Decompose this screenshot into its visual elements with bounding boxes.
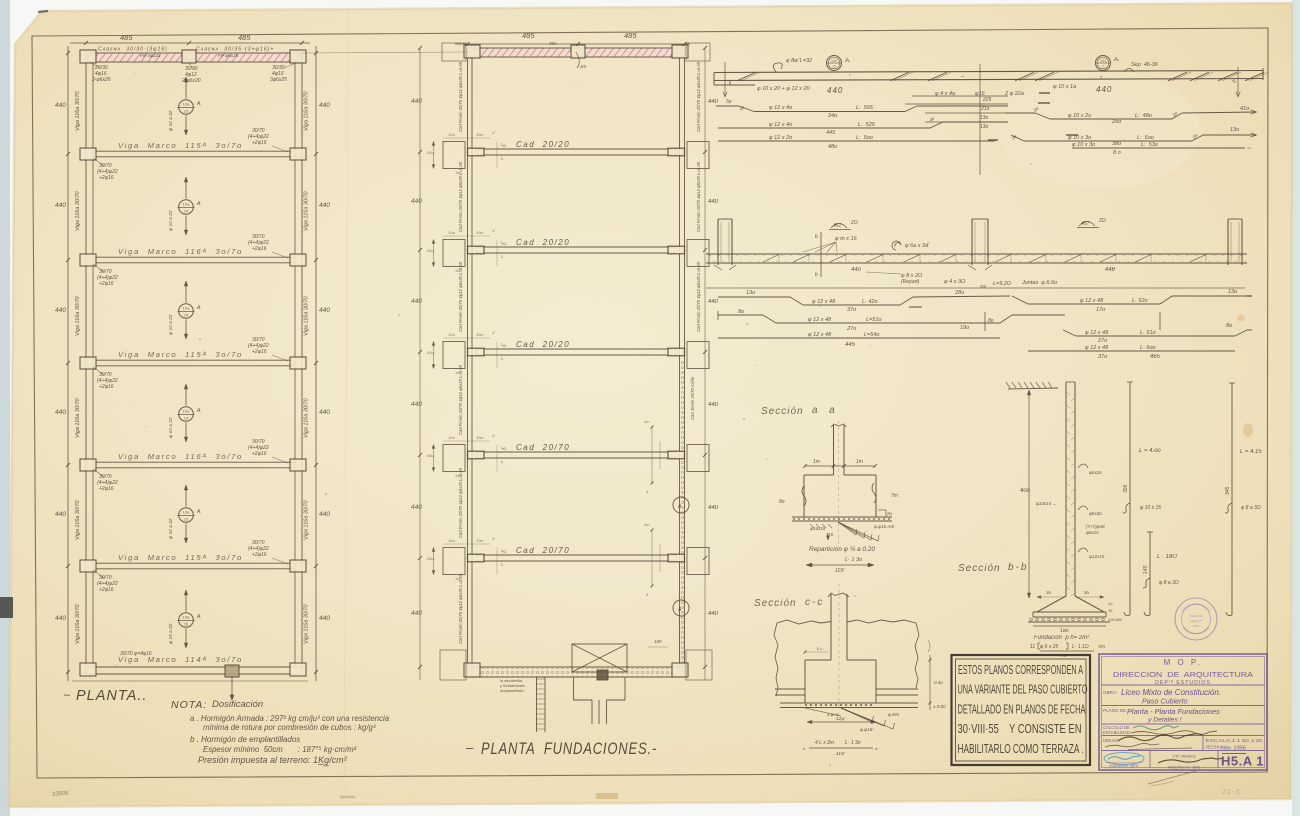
svg-text:L=54o: L=54o [864,332,879,338]
svg-text:Fundación p h= 2m²: Fundación p h= 2m² [1034,635,1090,641]
svg-text:Dosificación: Dosificación [212,699,263,710]
svg-text:A.: A. [196,101,202,107]
svg-text:12μ⁄: 12μ⁄ [836,716,846,722]
svg-text:Cᴀᴅᴇɴᴀ 30/35·(3+φ16)+: Cᴀᴅᴇɴᴀ 30/35·(3+φ16)+ [196,47,274,53]
svg-text:33806: 33806 [52,791,70,798]
svg-text:L· 1 3o: L· 1 3o [845,557,862,563]
svg-text:11m: 11m [448,539,455,543]
svg-text:DEPᵗª ESTUDIOS: DEPᵗª ESTUDIOS [1155,680,1211,686]
svg-text:440: 440 [319,202,330,209]
svg-text:4oo: 4oo [1020,488,1031,494]
svg-text:27o: 27o [846,326,856,332]
svg-text:φ 12 x 2o: φ 12 x 2o [769,135,792,141]
svg-text:H5.A 1: H5.A 1 [1221,754,1264,769]
svg-text:27o: 27o [1097,338,1107,344]
svg-text:445: 445 [826,130,836,136]
svg-text:φ 10 a 22: φ 10 a 22 [168,417,174,438]
svg-text:1oo: 1oo [1060,628,1069,634]
svg-text:φ 12 x 48: φ 12 x 48 [1085,330,1109,336]
svg-text:10a: 10a [183,615,190,620]
svg-text:440: 440 [708,505,719,511]
svg-text:30/70 φ=4φ16: 30/70 φ=4φ16 [120,651,152,657]
svg-text:Cad Fimón 20/70 4φ12 φ6x20 L=5: Cad Fimón 20/70 4φ12 φ6x20 L=5.60 [458,467,463,538]
svg-text:(7+7)φ48: (7+7)φ48 [1086,524,1105,529]
svg-text:Feˡˡ φ6x25: Feˡˡ φ6x25 [218,53,239,58]
svg-text:φ 10 x 2o: φ 10 x 2o [1068,113,1091,119]
svg-text:Cad Fimón 20/70 4φ12 φ6x20 L=5: Cad Fimón 20/70 4φ12 φ6x20 L=5.60 [696,61,701,132]
svg-text:L · 18O: L · 18O [1157,554,1177,560]
svg-text:10m: 10m [476,231,483,235]
svg-text:115⁄: 115⁄ [836,751,846,757]
svg-text:440: 440 [708,299,719,305]
svg-text:φ 8 a 3O: φ 8 a 3O [1159,580,1179,586]
svg-text:Viga 116a 30/70: Viga 116a 30/70 [304,91,310,131]
svg-text:440: 440 [55,409,66,416]
svg-text:b: b [815,234,818,240]
svg-text:A.: A. [196,509,202,515]
svg-text:y Detalles !: y Detalles ! [1147,717,1182,724]
svg-text:440: 440 [319,511,330,518]
svg-text:41o: 41o [1240,106,1249,112]
svg-text:Cad Fimón 20/70 4φ12 φ6x20 L=5: Cad Fimón 20/70 4φ12 φ6x20 L=5.60 [458,573,463,644]
svg-text:Sep 46-36: Sep 46-36 [1131,62,1159,68]
svg-text:+2φ16: +2φ16 [99,587,114,593]
svg-text:a . Hormigón Armada : 297² kg: a . Hormigón Armada : 297² kg cm/ju³ con… [190,714,390,723]
svg-text:440: 440 [708,99,719,105]
svg-text:L· 1 3o: L· 1 3o [845,740,861,746]
svg-text:φ 12 x 48: φ 12 x 48 [1080,298,1104,304]
svg-text:44θ: 44θ [1105,267,1116,273]
svg-text:φ 10 x 20 + φ 12 x 20: φ 10 x 20 + φ 12 x 20 [757,86,811,92]
svg-text:Viga 116a 30/70: Viga 116a 30/70 [75,296,81,336]
svg-text:φ 10 x 3o: φ 10 x 3o [1068,135,1091,141]
svg-text:2oo: 2oo [1111,119,1121,125]
svg-text:PLANTA FUNDACIONES.-: PLANTA FUNDACIONES.- [481,740,657,758]
svg-text:1m: 1m [813,459,820,465]
svg-text:A: A [677,504,682,510]
svg-text:15: 15 [184,109,189,114]
svg-text:φ 12 x 48: φ 12 x 48 [1085,345,1109,351]
svg-text:440: 440 [411,98,422,105]
svg-text:11m: 11m [448,333,455,337]
svg-text:485: 485 [120,33,133,42]
svg-text:Paso Cubierto: Paso Cubierto [1142,697,1188,706]
svg-text:L: 525: L: 525 [858,122,876,128]
svg-text:L· 1.1O: L· 1.1O [1072,644,1089,650]
svg-text:10m: 10m [476,333,483,337]
svg-text:225: 225 [982,97,992,103]
svg-text:1m: 1m [856,459,863,465]
svg-text:+2φ16: +2φ16 [252,349,267,355]
svg-text:└o: └o [500,142,506,148]
svg-text:65ω: 65ω [427,557,434,561]
svg-text:Viga 116a 30/70: Viga 116a 30/70 [304,296,310,336]
svg-text:Cad Fimón 20/70 4φ12 φ6x20 L=5: Cad Fimón 20/70 4φ12 φ6x20 L=5.60 [458,161,463,232]
svg-text:PLANO DE:: PLANO DE: [1103,708,1128,713]
svg-text:0.4o: 0.4o [934,680,943,685]
svg-text:15: 15 [184,517,189,522]
svg-text:1m: 1m [644,419,650,424]
svg-text:A: A [677,607,682,613]
svg-text:345: 345 [1225,486,1231,495]
svg-text:Viga Marco 115ᴬ 3o/7o: Viga Marco 115ᴬ 3o/7o [118,142,243,150]
svg-text:Viga 116a 30/70: Viga 116a 30/70 [75,191,81,231]
svg-text:Viga Marco 115ᴬ 3o/7o: Viga Marco 115ᴬ 3o/7o [118,351,243,359]
svg-text:Espesor mínimo 50cm : 1: Espesor mínimo 50cm : 187°⁵ kg·cm/m² [203,745,357,754]
svg-text:+2φ16: +2φ16 [99,384,114,390]
svg-text:φ 12 x 48: φ 12 x 48 [812,299,836,305]
svg-text:Viga 116a 30/70: Viga 116a 30/70 [304,604,310,644]
svg-text:φ 10 a 22: φ 10 a 22 [168,110,174,131]
svg-text:Feˡˡ 4φ22a: Feˡˡ 4φ22a [140,53,161,58]
svg-text:13o: 13o [1228,289,1237,295]
svg-text:21-3: 21-3 [1221,789,1240,796]
svg-text:104: 104 [1100,59,1106,63]
svg-text:+2φ16: +2φ16 [99,486,114,492]
svg-text:∿: ∿ [1231,79,1236,85]
svg-text:φ 8a⁄ L=32: φ 8a⁄ L=32 [786,58,812,64]
svg-text:7m: 7m [891,493,898,499]
svg-text:Cad Fimón 20/70 4φ12 φ6x20 L=5: Cad Fimón 20/70 4φ12 φ6x20 L=5.60 [458,364,463,435]
svg-text:φ 8 a 3O: φ 8 a 3O [1241,505,1261,511]
svg-text:Cad Fimón 20/70 4φ12 φ6x20 L=5: Cad Fimón 20/70 4φ12 φ6x20 L=5.60 [458,61,463,132]
svg-text:Cad Fimón 20/70 4φ12 φ6x20 L=5: Cad Fimón 20/70 4φ12 φ6x20 L=5.60 [458,261,463,332]
svg-text:2-φ6x20: 2-φ6x20 [181,78,201,84]
svg-text:ESCALA:1:1 50 1:20: ESCALA:1:1 50 1:20 [1206,738,1264,743]
svg-text:φ10x15 ←: φ10x15 ← [1036,501,1057,506]
svg-text:445: 445 [845,342,856,348]
svg-text:Cad 20/20: Cad 20/20 [516,140,570,149]
svg-text:–: – [466,740,474,755]
svg-text:Cad Fimón 20/70 4φ12 φ6x20 L=5: Cad Fimón 20/70 4φ12 φ6x20 L=5.60 [696,261,701,332]
svg-text:A.: A. [196,305,202,311]
svg-text:28o: 28o [954,290,964,296]
svg-text:440: 440 [411,610,422,617]
svg-text:φ12x15: φ12x15 [1089,554,1105,559]
svg-text:Sección: Sección [958,563,1001,574]
svg-text:440: 440 [411,298,422,305]
svg-text:1m: 1m [644,522,650,527]
svg-text:10a: 10a [183,409,190,414]
svg-text:15: 15 [184,209,189,214]
svg-text:L: 5oo: L: 5oo [856,135,873,141]
svg-text:Viga 116a 30/70: Viga 116a 30/70 [75,398,81,438]
svg-text:440: 440 [1096,85,1112,94]
svg-text:30·VIII·55 Y CONSISTE EN: 30·VIII·55 Y CONSISTE EN [958,721,1082,736]
svg-text:19o: 19o [960,325,969,331]
svg-text:L: 6oo: L: 6oo [1137,135,1154,141]
svg-text:+2φ16: +2φ16 [252,140,267,146]
svg-text:+2φ16: +2φ16 [99,175,114,181]
svg-text:Cad 20/70: Cad 20/70 [516,546,570,555]
svg-text:11: 11 [1030,644,1035,650]
svg-text:440: 440 [319,409,330,416]
svg-text:10m: 10m [476,436,483,440]
svg-text:2: 2 [1102,65,1104,69]
svg-text:└o: └o [500,548,506,554]
svg-text:NOTA:: NOTA: [171,699,207,711]
svg-text:INGENIERO JEFE: INGENIERO JEFE [1109,764,1139,768]
svg-text:L=9.2O: L=9.2O [993,281,1012,287]
svg-text:8 o: 8 o [1113,150,1121,156]
svg-text:440: 440 [319,307,330,314]
svg-text:φ 12 x 4o: φ 12 x 4o [769,105,792,111]
svg-text:37o: 37o [847,307,856,313]
svg-text:φ.φ16 Adi: φ.φ16 Adi [874,524,895,529]
svg-text:65ω: 65ω [427,151,434,155]
svg-text:Viga 116a 30/70: Viga 116a 30/70 [75,91,81,131]
svg-text:L· 6oo: L· 6oo [1140,345,1156,351]
svg-text:1o: 1o [1108,601,1113,606]
svg-text:440: 440 [55,307,66,314]
svg-text:8o: 8o [779,499,785,505]
svg-text:15: 15 [184,313,189,318]
svg-text:b: b [815,272,818,278]
svg-text:44o: 44o [851,267,862,273]
svg-text:Cad Fimón 20/70 4φ12 φ6x20 L=5: Cad Fimón 20/70 4φ12 φ6x20 L=5.60 [696,161,701,232]
svg-text:2o: 2o [886,511,893,516]
svg-text:Juntas φ 6.6o: Juntas φ 6.6o [1021,280,1057,286]
svg-text:10a: 10a [183,102,190,107]
svg-text:10a: 10a [183,306,190,311]
svg-text:485: 485 [238,33,251,42]
svg-text:Viga Marco 116ᴬ 3o/7o: Viga Marco 116ᴬ 3o/7o [118,248,243,256]
svg-text:Cad 20/20: Cad 20/20 [516,340,570,349]
svg-text:φ 6 x 25: φ 6 x 25 [1040,644,1058,650]
svg-text:13o: 13o [980,115,989,121]
svg-text:ESTABILIDAD:: ESTABILIDAD: [1103,730,1131,735]
svg-text:–: – [64,689,71,701]
svg-text:15: 15 [184,416,189,421]
svg-text:DIBUJO:: DIBUJO: [1103,738,1120,743]
svg-text:PLANTA..: PLANTA.. [76,688,147,704]
svg-text:L· 42o: L· 42o [862,299,878,305]
svg-text:5o: 5o [726,99,732,105]
svg-text:100: 100 [654,639,662,644]
svg-text:Viga 116a 30/70: Viga 116a 30/70 [304,398,310,438]
svg-text:≈: ≈ [1100,75,1103,81]
svg-text:ARQUITECTO JEFE: ARQUITECTO JEFE [1168,766,1201,770]
svg-text:440: 440 [411,198,422,205]
svg-text:└o: └o [500,342,506,348]
svg-text:Sección: Sección [761,406,804,417]
svg-text:10m: 10m [476,539,483,543]
svg-text:Lₘ: Lₘ [817,646,823,651]
svg-text:440: 440 [55,102,66,109]
svg-text:+2φ16: +2φ16 [252,451,267,457]
svg-text:10m: 10m [476,133,483,137]
svg-text:M O P.: M O P. [1164,658,1203,667]
svg-text:MOP: MOP [1193,624,1200,628]
svg-text:mínima de rotura por combresió: mínima de rotura por combresión de cubos… [203,723,376,732]
svg-text:L = 4.15: L = 4.15 [1240,449,1262,455]
svg-text:2-φ6x25: 2-φ6x25 [91,77,111,83]
svg-text:485: 485 [624,31,637,40]
svg-text:Nov. 1956: Nov. 1956 [1221,746,1247,752]
svg-text:L = 4.oo: L = 4.oo [1139,448,1161,454]
svg-text:440: 440 [55,615,66,622]
svg-text:+2φ16: +2φ16 [252,552,267,558]
svg-text:L: 565: L: 565 [856,105,874,111]
svg-text:c-c: c-c [805,597,824,608]
svg-text:13o: 13o [980,124,989,130]
svg-text:Viga 116a 30/70: Viga 116a 30/70 [75,604,81,644]
svg-text:3m: 3m [580,64,587,69]
svg-text:10a: 10a [183,510,190,515]
svg-text:7⁄m: 7⁄m [1098,644,1105,649]
svg-text:∼: ∼ [1246,146,1251,152]
svg-text:A.: A. [196,614,202,620]
svg-text:440: 440 [708,402,719,408]
svg-text:65ω: 65ω [427,454,434,458]
svg-text:OBRA:: OBRA: [1103,690,1117,695]
svg-text:65ω: 65ω [427,351,434,355]
svg-text:Sección: Sección [754,598,797,609]
svg-text:L: 48o: L: 48o [1135,113,1152,119]
svg-text:440: 440 [55,202,66,209]
svg-text:440: 440 [319,615,330,622]
svg-text:A.: A. [844,58,851,64]
svg-text:φ 6⁄m: φ 6⁄m [888,712,899,717]
svg-text:395: 395 [1123,484,1129,493]
svg-text:V°B° MINARQ: V°B° MINARQ [1172,755,1195,759]
svg-text:±20 AM: ±20 AM [1108,617,1122,622]
svg-text:145: 145 [1143,565,1149,574]
svg-text:φ m x 16: φ m x 16 [835,236,858,242]
svg-text:38o: 38o [1112,141,1121,147]
svg-text:Cᴀᴅᴇɴᴀ 30/30·|3φ16|: Cᴀᴅᴇɴᴀ 30/30·|3φ16| [98,47,168,53]
svg-text:465: 465 [1150,354,1161,360]
svg-text:451: 451 [833,223,842,229]
svg-text:ARQUIT: ARQUIT [1190,619,1202,623]
svg-text:φ 12 x 48: φ 12 x 48 [808,317,832,323]
svg-text:48o: 48o [828,144,837,150]
svg-text:φ 12 x 4o: φ 12 x 4o [769,122,792,128]
svg-text:UNA VARIANTE DEL PASO CUBIERTO: UNA VARIANTE DEL PASO CUBIERTO [958,682,1088,697]
svg-text:11m: 11m [448,436,455,440]
svg-text:13o: 13o [746,290,755,296]
svg-text:Cad 20/70: Cad 20/70 [516,443,570,452]
svg-text:17o: 17o [1096,307,1105,313]
svg-text:└o: └o [500,445,506,451]
svg-text:± 0.00: ± 0.00 [933,704,946,709]
svg-text:2O: 2O [850,220,858,226]
svg-text:Viga Marco 114ᴬ 3o/7o: Viga Marco 114ᴬ 3o/7o [118,656,243,664]
svg-text:24o: 24o [827,113,837,119]
svg-text:440: 440 [411,401,422,408]
svg-text:Viga 116a 30/70: Viga 116a 30/70 [304,500,310,540]
svg-text:└o: └o [500,240,506,246]
svg-text:Viga 116a 30/70: Viga 116a 30/70 [304,191,310,231]
svg-text:65ω: 65ω [427,249,434,253]
svg-text:b . Hormigón de emplantillados: b . Hormigón de emplantillados [190,735,300,744]
svg-text:DETALLADO EN PLANOS DE FECHA: DETALLADO EN PLANOS DE FECHA [958,702,1086,717]
svg-text:b-b: b-b [1008,562,1028,573]
svg-text:φ 10 a 22: φ 10 a 22 [168,314,174,335]
svg-text:+2φ16: +2φ16 [252,246,267,252]
svg-text:Viga 116a 30/70: Viga 116a 30/70 [75,500,81,540]
svg-text:37o: 37o [1098,354,1107,360]
svg-text:440: 440 [827,86,843,95]
svg-text:11m: 11m [448,231,455,235]
svg-text:φ8x3o: φ8x3o [1089,511,1102,516]
svg-text:Cad Jímón 20/70 Anillo: Cad Jímón 20/70 Anillo [690,376,695,420]
svg-text:φ 12 x 48: φ 12 x 48 [808,332,832,338]
svg-text:8o: 8o [1226,323,1232,329]
svg-text:L· 52o: L· 52o [1132,298,1148,304]
svg-text:φ 4 x 3O: φ 4 x 3O [944,279,966,285]
svg-text:φ.φ16⁄: φ.φ16⁄ [860,727,874,732]
svg-text:485: 485 [522,31,535,40]
svg-text:φ 10 x 15: φ 10 x 15 [1140,505,1161,511]
svg-text:440: 440 [319,102,330,109]
svg-text:Presión impuesta al terreno: 1: Presión impuesta al terreno: 1K̲g̲/cm² [198,755,348,766]
svg-text:FECHA:: FECHA: [1206,745,1223,750]
svg-text:440: 440 [411,504,422,511]
svg-text:(Repart): (Repart) [901,279,920,285]
svg-text:φ 10 a 22: φ 10 a 22 [168,210,174,231]
svg-text:HABILITARLO COMO TERRAZA .: HABILITARLO COMO TERRAZA . [958,741,1084,756]
svg-text:φ6x2o: φ6x2o [1089,470,1102,475]
svg-text:3φ6x25: 3φ6x25 [270,77,287,83]
svg-text:13o: 13o [1230,127,1239,133]
svg-text:φ 6a x 3a: φ 6a x 3a [905,243,928,249]
svg-text:Repartición φ ¼ a 0.20: Repartición φ ¼ a 0.20 [809,546,875,553]
svg-text:A.: A. [196,201,202,207]
svg-text:emplantillado: emplantillado [500,688,524,693]
svg-text:Planta - Planta Fundaciones: Planta - Planta Fundaciones [1127,707,1220,716]
svg-text:440: 440 [55,511,66,518]
svg-text:108: 108 [831,59,837,63]
svg-text:A.: A. [1113,57,1120,63]
svg-text:L· 51o: L· 51o [1140,330,1156,336]
svg-text:ESTOS PLANOS CORRESPONDEN A: ESTOS PLANOS CORRESPONDEN A [958,662,1083,677]
svg-text:φ 10 x 3o: φ 10 x 3o [1072,142,1095,148]
svg-text:7⁄m: 7⁄m [549,41,556,46]
svg-text:440: 440 [708,611,719,617]
svg-text:440: 440 [708,199,719,205]
svg-text:15: 15 [1108,608,1113,613]
svg-text:4 L x 2m: 4 L x 2m [815,740,834,746]
svg-text:φ16x1θ: φ16x1θ [810,526,826,531]
svg-text:L=51o: L=51o [866,317,881,323]
svg-text:L: 53o: L: 53o [1141,142,1158,148]
svg-text:2O: 2O [1098,218,1106,224]
svg-text:15: 15 [184,622,189,627]
svg-text:21o: 21o [980,106,990,112]
svg-text:3o: 3o [1046,590,1052,595]
svg-text:DIREC DE: DIREC DE [1189,614,1203,618]
svg-text:+2φ16: +2φ16 [99,281,114,287]
svg-text:Viga Marco 116ᴬ 3o/7o: Viga Marco 116ᴬ 3o/7o [118,453,243,461]
svg-text:8o: 8o [988,318,994,324]
svg-text:3o: 3o [1084,590,1090,595]
svg-text:115⁄: 115⁄ [835,568,845,574]
svg-text:10a: 10a [183,202,190,207]
svg-text:A.: A. [196,408,202,414]
svg-text:φ6x2o: φ6x2o [1086,530,1099,535]
svg-text:DIRECCION DE ARQUITECTURA: DIRECCION DE ARQUITECTURA [1113,670,1253,679]
svg-text:15: 15 [832,65,836,69]
svg-text:Viga Marco 115ᴬ 3o/7o: Viga Marco 115ᴬ 3o/7o [118,554,243,562]
svg-text:Cad 20/20: Cad 20/20 [516,238,570,247]
svg-text:φ 10 a 22: φ 10 a 22 [168,623,174,644]
svg-text:a a: a a [812,405,837,416]
svg-text:8o: 8o [738,309,744,315]
svg-text:11m: 11m [448,133,455,137]
svg-text:φ 10 a 22: φ 10 a 22 [168,518,174,539]
svg-text:φ 10 x 1a: φ 10 x 1a [1053,84,1076,90]
